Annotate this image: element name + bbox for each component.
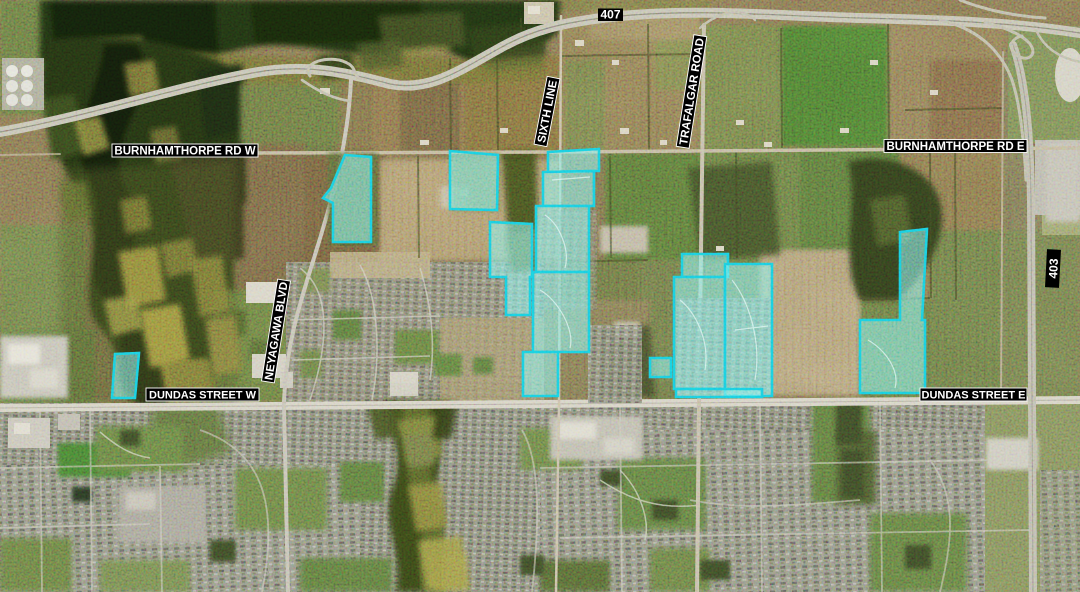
svg-text:BURNHAMTHORPE RD W: BURNHAMTHORPE RD W	[114, 146, 255, 158]
svg-text:DUNDAS STREET W: DUNDAS STREET W	[149, 390, 257, 402]
svg-text:DUNDAS STREET E: DUNDAS STREET E	[922, 390, 1026, 402]
svg-text:403: 403	[1046, 258, 1061, 279]
svg-text:BURNHAMTHORPE RD E: BURNHAMTHORPE RD E	[887, 141, 1025, 153]
svg-text:407: 407	[600, 8, 620, 22]
